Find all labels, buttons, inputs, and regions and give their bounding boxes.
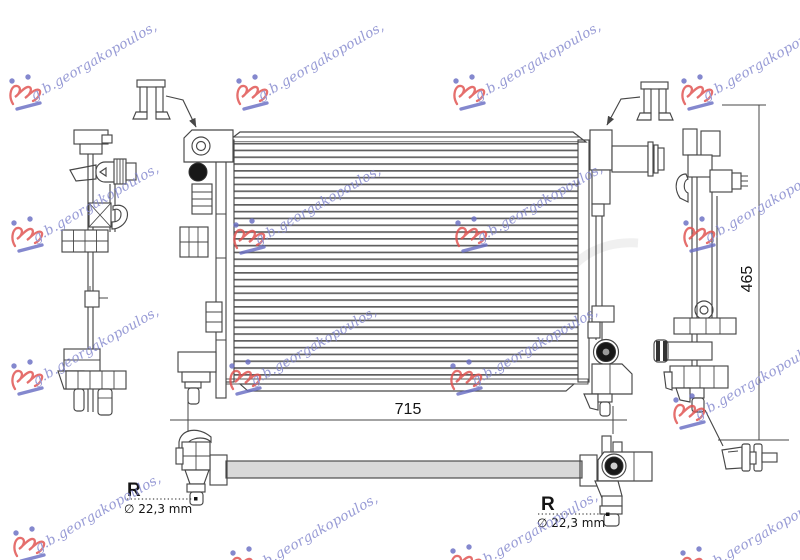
right-connector-ref: R	[541, 494, 555, 515]
drawing-svg: 715 465 R ∅ 22,3 mm R ∅ 22,3 mm	[0, 0, 800, 560]
top-left-mount-clip	[133, 80, 196, 127]
right-connector-diameter: ∅ 22,3 mm	[537, 516, 605, 530]
front-right-tank	[584, 130, 664, 416]
top-right-mount-clip	[607, 82, 673, 125]
radiator-bottom-view	[176, 430, 652, 526]
width-dimension-value: 715	[395, 401, 422, 418]
radiator-technical-drawing: 715 465 R ∅ 22,3 mm R ∅ 22,3 mm	[0, 0, 800, 560]
right-connector-callout: R ∅ 22,3 mm	[537, 494, 605, 530]
height-dimension-value: 465	[739, 266, 756, 293]
bottom-right-fitting	[595, 436, 652, 526]
left-connector-callout: R ∅ 22,3 mm	[124, 480, 193, 516]
left-connector-diameter: ∅ 22,3 mm	[124, 502, 192, 516]
left-side-view	[58, 130, 136, 415]
rubber-mount-part	[722, 444, 777, 471]
radiator-core	[224, 132, 589, 391]
height-dimension: 465	[718, 105, 789, 440]
bottom-left-fitting	[176, 430, 211, 505]
width-dimension: 715	[170, 400, 627, 434]
front-left-tank	[178, 130, 233, 404]
radiator-front-view	[178, 130, 664, 416]
left-connector-ref: R	[127, 480, 141, 501]
right-side-view	[654, 129, 748, 446]
